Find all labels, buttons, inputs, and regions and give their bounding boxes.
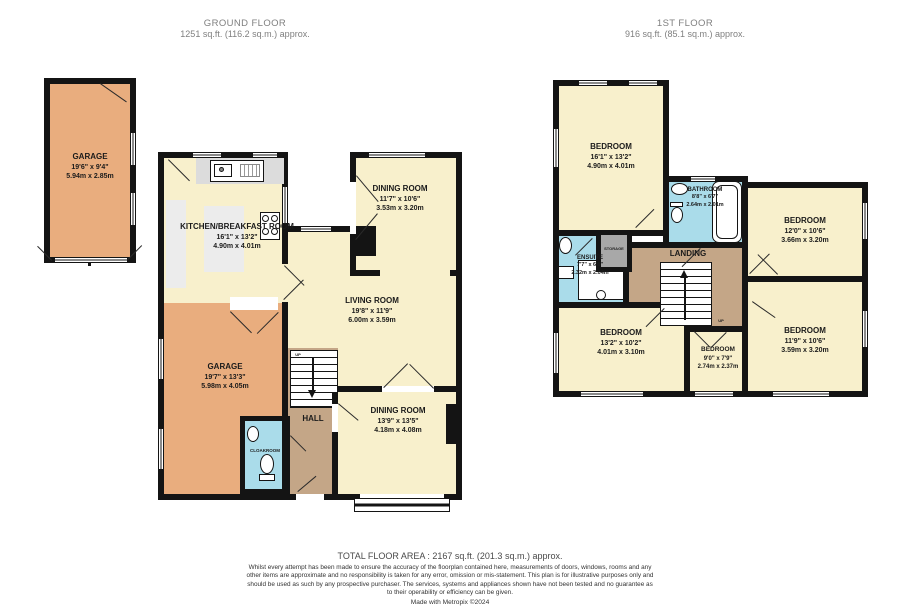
stairs-arrow-line: [312, 358, 314, 390]
window: [282, 186, 288, 224]
window: [690, 176, 716, 182]
first-floor-area: 916 sq.ft. (85.1 sq.m.) approx.: [540, 29, 830, 39]
credit-text: Made with Metropix ©2024: [180, 599, 720, 606]
room-label-garage-main: GARAGE 19'7" x 13'3" 5.98m x 4.05m: [164, 362, 286, 392]
room-label-storage: STORAGE: [596, 246, 632, 251]
room-label-kitchen: KITCHEN/BREAKFAST ROOM 16'1" x 13'2" 4.9…: [162, 222, 312, 252]
room-dim-imperial: 7'7" x 6'8": [554, 262, 626, 269]
room-name: BEDROOM: [746, 326, 864, 337]
opening-front-door: [296, 494, 324, 500]
room-dim-metric: 5.98m x 4.05m: [164, 382, 286, 391]
room-label-dining-top: DINING ROOM 11'7" x 10'6" 3.53m x 3.20m: [344, 184, 456, 214]
room-dim-metric: 3.59m x 3.20m: [746, 346, 864, 355]
window: [628, 80, 658, 86]
hob-burner: [262, 215, 269, 222]
room-name: GARAGE: [48, 152, 132, 163]
window: [252, 152, 278, 158]
room-dim-metric: 5.94m x 2.85m: [48, 172, 132, 181]
room-label-bedroom-1: BEDROOM 16'1" x 13'2" 4.90m x 4.01m: [555, 142, 667, 172]
room-dim-imperial: 16'1" x 13'2": [162, 233, 312, 242]
room-dim-metric: 4.18m x 4.08m: [338, 426, 458, 435]
window: [192, 152, 222, 158]
room-name: DINING ROOM: [338, 406, 458, 417]
room-dim-imperial: 16'1" x 13'2": [555, 153, 667, 162]
sink-icon: [247, 426, 259, 442]
room-dim-imperial: 12'0" x 10'6": [744, 227, 866, 236]
room-dim-metric: 2.64m x 2.01m: [664, 202, 746, 209]
room-label-landing: LANDING: [629, 249, 747, 260]
room-name: DINING ROOM: [344, 184, 456, 195]
room-label-bedroom-5: BEDROOM 11'9" x 10'6" 3.59m x 3.20m: [746, 326, 864, 356]
toilet-icon: [559, 237, 572, 254]
room-label-ensuite: ENSUITE 7'7" x 6'8" 2.32m x 2.04m: [554, 254, 626, 277]
window: [578, 80, 608, 86]
footer: TOTAL FLOOR AREA : 2167 sq.ft. (201.3 sq…: [180, 551, 720, 606]
stairs-arrow-head: [308, 390, 316, 398]
room-label-cloakroom: CLOAKROOM: [239, 448, 291, 454]
room-name: ENSUITE: [554, 254, 626, 262]
toilet-icon: [260, 454, 274, 474]
room-dim-metric: 4.90m x 4.01m: [555, 162, 667, 171]
room-name: BEDROOM: [744, 216, 866, 227]
room-label-bedroom-3: BEDROOM 13'2" x 10'2" 4.01m x 3.10m: [556, 328, 686, 358]
bay-window: [354, 498, 450, 512]
room-label-bedroom-4: BEDROOM 9'0" x 7'9" 2.74m x 2.37m: [686, 346, 750, 371]
hob-burner: [271, 215, 278, 222]
room-dim-imperial: 8'8" x 6'7": [664, 194, 746, 201]
room-dim-imperial: 19'8" x 11'9": [296, 307, 448, 316]
room-label-living: LIVING ROOM 19'8" x 11'9" 6.00m x 3.59m: [296, 296, 448, 326]
room-label-dining-bottom: DINING ROOM 13'9" x 13'5" 4.18m x 4.08m: [338, 406, 458, 436]
stairs-arrow-head: [680, 270, 688, 278]
first-floor-title: 1ST FLOOR: [540, 18, 830, 29]
room-dim-imperial: 9'0" x 7'9": [686, 355, 750, 363]
window: [130, 192, 136, 226]
window: [158, 428, 164, 470]
disclaimer-text: Whilst every attempt has been made to en…: [244, 564, 656, 598]
room-name: BEDROOM: [556, 328, 686, 339]
first-floor-header: 1ST FLOOR 916 sq.ft. (85.1 sq.m.) approx…: [540, 18, 830, 39]
sink-drain-icon: [219, 167, 224, 172]
room-dim-imperial: 11'9" x 10'6": [746, 337, 864, 346]
room-name: LIVING ROOM: [296, 296, 448, 307]
window: [580, 391, 644, 397]
room-name: BATHROOM: [664, 186, 746, 194]
room-label-hall: HALL: [288, 414, 338, 425]
room-dim-metric: 4.01m x 3.10m: [556, 348, 686, 357]
room-dining-top: [350, 152, 462, 276]
room-label-bathroom: BATHROOM 8'8" x 6'7" 2.64m x 2.01m: [664, 186, 746, 209]
room-dim-metric: 6.00m x 3.59m: [296, 316, 448, 325]
room-dim-metric: 2.32m x 2.04m: [554, 270, 626, 277]
window: [694, 391, 734, 397]
toilet-tank-icon: [259, 474, 275, 481]
room-label-bedroom-2: BEDROOM 12'0" x 10'6" 3.66m x 3.20m: [744, 216, 866, 246]
window: [772, 391, 830, 397]
window: [368, 152, 426, 158]
room-dim-imperial: 19'6" x 9'4": [48, 163, 132, 172]
room-dim-imperial: 19'7" x 13'3": [164, 373, 286, 382]
room-name: KITCHEN/BREAKFAST ROOM: [162, 222, 312, 233]
stairs-up-label: UP: [291, 352, 305, 357]
ground-floor-title: GROUND FLOOR: [105, 18, 385, 29]
room-dim-imperial: 11'7" x 10'6": [344, 195, 456, 204]
room-dim-imperial: 13'9" x 13'5": [338, 417, 458, 426]
room-dim-metric: 4.90m x 4.01m: [162, 242, 312, 251]
room-dim-metric: 3.53m x 3.20m: [344, 204, 456, 213]
room-dim-metric: 2.74m x 2.37m: [686, 363, 750, 371]
ground-floor-area: 1251 sq.ft. (116.2 sq.m.) approx.: [105, 29, 385, 39]
wall-garage-hall: [282, 303, 288, 494]
opening-garage: [230, 297, 278, 310]
garage-door-front: [54, 257, 128, 263]
total-floor-area: TOTAL FLOOR AREA : 2167 sq.ft. (201.3 sq…: [180, 551, 720, 561]
floorplan-page: { "ground_floor": { "title": "GROUND FLO…: [0, 0, 900, 611]
stairs-ground: [290, 350, 338, 408]
sink-drainer-icon: [240, 164, 260, 177]
ground-floor-header: GROUND FLOOR 1251 sq.ft. (116.2 sq.m.) a…: [105, 18, 385, 39]
stairs-up-label: UP: [714, 318, 728, 323]
stairs-arrow-line: [684, 278, 686, 320]
room-dim-imperial: 13'2" x 10'2": [556, 339, 686, 348]
room-name: BEDROOM: [686, 346, 750, 355]
room-name: BEDROOM: [555, 142, 667, 153]
toilet-icon: [671, 207, 683, 223]
room-label-garage-top: GARAGE 19'6" x 9'4" 5.94m x 2.85m: [48, 152, 132, 182]
room-dim-metric: 3.66m x 3.20m: [744, 236, 866, 245]
opening-french-doors: [382, 386, 434, 392]
opening-dining-living: [380, 270, 450, 276]
room-name: GARAGE: [164, 362, 286, 373]
shower-drain-icon: [596, 290, 606, 300]
